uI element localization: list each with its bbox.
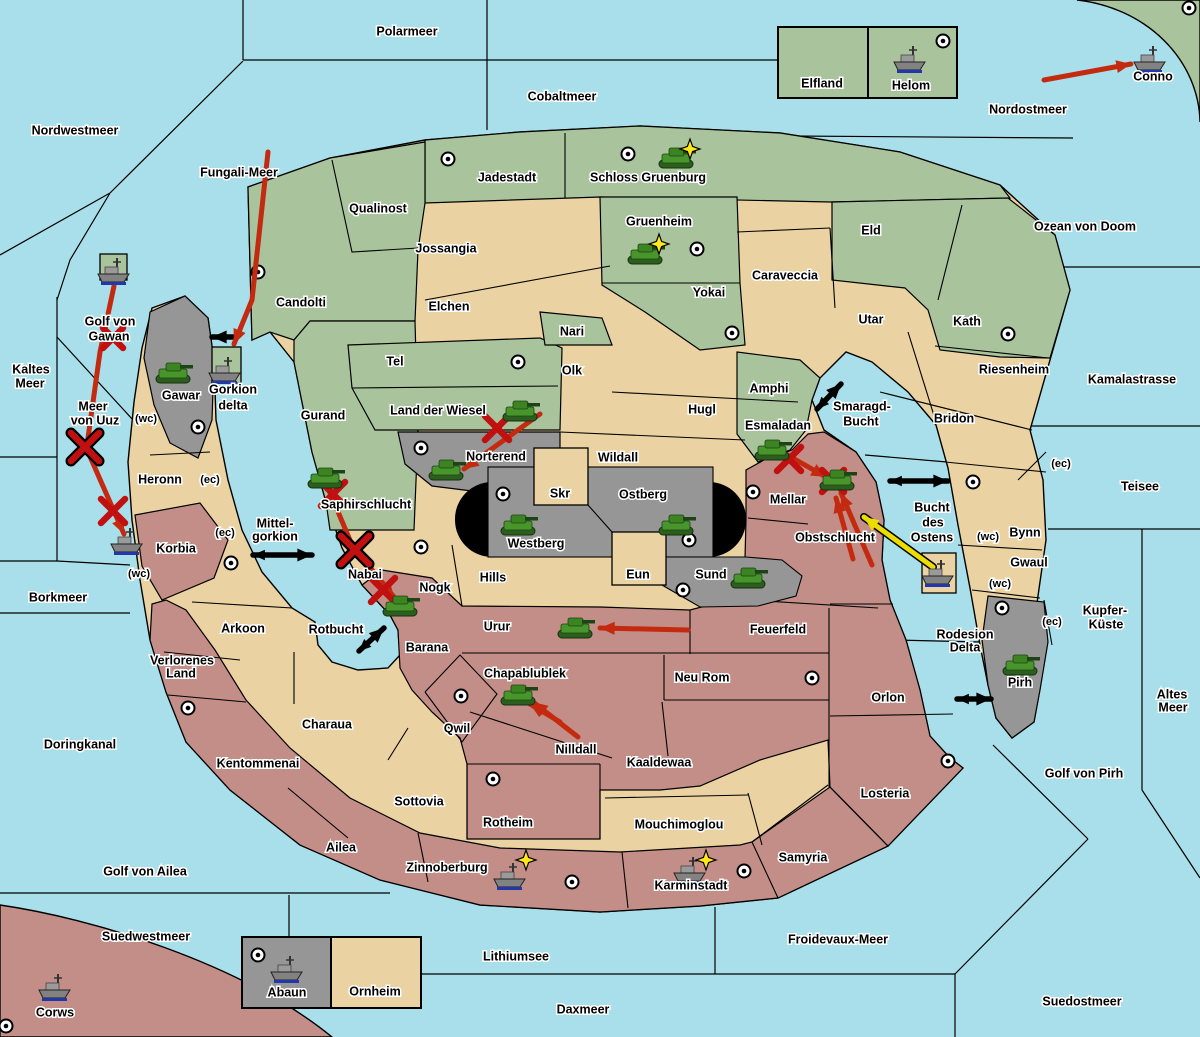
region-label-ailea[interactable]: Ailea <box>326 840 357 854</box>
region-label-zinnoberburg[interactable]: Zinnoberburg <box>406 860 487 874</box>
region-label--ec-: (ec) <box>215 527 235 539</box>
supply-center-dot <box>487 773 500 786</box>
region-label-gurand[interactable]: Gurand <box>301 408 345 422</box>
region-label-gruenheim[interactable]: Gruenheim <box>626 214 692 228</box>
region-label-olk[interactable]: Olk <box>562 363 582 377</box>
region-label-obstschlucht[interactable]: Obstschlucht <box>795 530 876 544</box>
supply-center-dot <box>806 672 819 685</box>
region-label-helom[interactable]: Helom <box>892 78 930 92</box>
region-label-qualinost[interactable]: Qualinost <box>349 201 407 215</box>
region-label-ostberg[interactable]: Ostberg <box>619 487 667 501</box>
sea-label-nordwestmeer: Nordwestmeer <box>32 123 119 137</box>
region-label-candolti[interactable]: Candolti <box>276 295 326 309</box>
region-label-amphi[interactable]: Amphi <box>750 381 789 395</box>
supply-center-dot <box>996 602 1009 615</box>
supply-center-dot <box>192 421 205 434</box>
region-label-esmaladan[interactable]: Esmaladan <box>745 418 811 432</box>
region-label-feuerfeld[interactable]: Feuerfeld <box>750 622 806 636</box>
region-label-nabai[interactable]: Nabai <box>348 567 382 581</box>
sea-label-golf-von-ailea: Golf von Ailea <box>103 864 188 878</box>
region-label--wc-: (wc) <box>135 413 157 425</box>
region-label--wc-: (wc) <box>977 531 999 543</box>
sea-label-suedwestmeer: Suedwestmeer <box>102 929 190 943</box>
sea-label-meer: Meer <box>78 399 107 413</box>
region-label-hills[interactable]: Hills <box>480 570 506 584</box>
region-label-qwil[interactable]: Qwil <box>444 721 470 735</box>
supply-center-dot <box>512 356 525 369</box>
region-label-delta[interactable]: delta <box>218 398 248 412</box>
region-label-saphirschlucht[interactable]: Saphirschlucht <box>321 497 412 511</box>
region-label-yokai[interactable]: Yokai <box>693 285 725 299</box>
region-label-charaua[interactable]: Charaua <box>302 717 353 731</box>
region-label-sund[interactable]: Sund <box>695 567 726 581</box>
sea-label-bucht: Bucht <box>914 500 950 514</box>
region-label-jossangia[interactable]: Jossangia <box>415 241 477 255</box>
sea-label-lithiumsee: Lithiumsee <box>483 949 549 963</box>
region-label-land[interactable]: Land <box>166 666 196 680</box>
supply-center-dot <box>252 949 265 962</box>
supply-center-dot <box>691 243 704 256</box>
region-label--ec-: (ec) <box>1051 458 1071 470</box>
sea-label-meer: Meer <box>15 376 44 390</box>
region-label-jadestadt[interactable]: Jadestadt <box>478 170 537 184</box>
region-label-nari[interactable]: Nari <box>560 324 584 338</box>
sea-label-golf-von-pirh: Golf von Pirh <box>1045 766 1123 780</box>
supply-center-dot <box>1183 2 1196 15</box>
sea-label-kaltes: Kaltes <box>12 362 50 376</box>
map-canvas[interactable]: PolarmeerCobaltmeerNordwestmeerFungali-M… <box>0 0 1200 1037</box>
supply-center-dot <box>415 541 428 554</box>
supply-center-dot <box>455 690 468 703</box>
supply-center-dot <box>967 476 980 489</box>
supply-center-dot <box>1002 328 1015 341</box>
supply-center-dot <box>225 557 238 570</box>
sea-label-meer: Meer <box>1158 700 1187 714</box>
supply-center-dot <box>937 35 950 48</box>
supply-center-dot <box>566 876 579 889</box>
region-label-verlorenes[interactable]: Verlorenes <box>150 653 214 667</box>
region-label-kaaldewaa[interactable]: Kaaldewaa <box>627 755 693 769</box>
region-label--wc-: (wc) <box>128 568 150 580</box>
sea-label-des: des <box>922 515 944 529</box>
region-label-rotheim[interactable]: Rotheim <box>483 815 533 829</box>
region-label-hugl[interactable]: Hugl <box>688 402 716 416</box>
region-label-mouchimoglou[interactable]: Mouchimoglou <box>635 817 724 831</box>
sea-label-rodesion: Rodesion <box>937 627 994 641</box>
region-label--ec-: (ec) <box>1042 616 1062 628</box>
supply-center-dot <box>677 584 690 597</box>
supply-center-dot <box>622 148 635 161</box>
region-label-chapablublek[interactable]: Chapablublek <box>484 666 566 680</box>
sea-label-ostens: Ostens <box>911 530 953 544</box>
region-label-schloss-gruenburg[interactable]: Schloss Gruenburg <box>590 170 706 184</box>
sea-label-borkmeer: Borkmeer <box>29 590 87 604</box>
region-label-mellar[interactable]: Mellar <box>770 492 806 506</box>
supply-center-dot <box>0 1020 13 1033</box>
region-label-ornheim[interactable]: Ornheim <box>349 984 400 998</box>
sea-label-altes: Altes <box>1157 687 1188 701</box>
supply-center-dot <box>726 327 739 340</box>
sea-label-suedostmeer: Suedostmeer <box>1042 994 1121 1008</box>
region-label-elfland[interactable]: Elfland <box>801 76 843 90</box>
supply-center-dot <box>942 755 955 768</box>
supply-center-dot <box>747 486 760 499</box>
region-label-westberg[interactable]: Westberg <box>508 536 565 550</box>
region-label-land-der-wiesel[interactable]: Land der Wiesel <box>390 403 486 417</box>
region-label-nogk[interactable]: Nogk <box>419 580 450 594</box>
sea-label-polarmeer: Polarmeer <box>376 24 437 38</box>
region-label-samyria[interactable]: Samyria <box>779 850 829 864</box>
supply-center-dot <box>738 865 751 878</box>
region-label-elchen[interactable]: Elchen <box>429 299 470 313</box>
supply-center-dot <box>442 153 455 166</box>
sea-label-k-ste: Küste <box>1089 617 1124 631</box>
region-label-arkoon[interactable]: Arkoon <box>221 621 265 635</box>
sea-label-daxmeer: Daxmeer <box>557 1002 610 1016</box>
sea-label-doringkanal: Doringkanal <box>44 737 116 751</box>
sea-label-nordostmeer: Nordostmeer <box>989 102 1067 116</box>
region-label--ec-: (ec) <box>200 474 220 486</box>
sea-label-cobaltmeer: Cobaltmeer <box>528 89 597 103</box>
sea-label-mittel-: Mittel- <box>257 516 294 530</box>
region-label-neu-rom[interactable]: Neu Rom <box>675 670 730 684</box>
region-label-eld[interactable]: Eld <box>861 223 880 237</box>
sea-label-von-uuz: von Uuz <box>71 413 120 427</box>
region-label-tel[interactable]: Tel <box>386 354 403 368</box>
region-label-utar[interactable]: Utar <box>858 312 883 326</box>
region-label-conno[interactable]: Conno <box>1133 69 1173 83</box>
region-label-bridon[interactable]: Bridon <box>934 411 974 425</box>
region-label-heronn[interactable]: Heronn <box>138 472 182 486</box>
region-label-gwaul[interactable]: Gwaul <box>1010 555 1048 569</box>
game-map[interactable]: PolarmeerCobaltmeerNordwestmeerFungali-M… <box>0 0 1200 1037</box>
supply-center-dot <box>182 702 195 715</box>
region-label-kentommenai[interactable]: Kentommenai <box>217 756 300 770</box>
sea-label-smaragd-: Smaragd- <box>833 399 891 413</box>
sea-label-delta: Delta <box>950 640 982 654</box>
region-label-abaun[interactable]: Abaun <box>268 985 307 999</box>
region-label-karminstadt[interactable]: Karminstadt <box>655 878 729 892</box>
supply-center-dot <box>497 488 510 501</box>
sea-label-kamalastrasse: Kamalastrasse <box>1088 372 1176 386</box>
sea-label-gawan: Gawan <box>89 329 130 343</box>
region-label-sottovia[interactable]: Sottovia <box>394 794 444 808</box>
supply-center-dot <box>415 442 428 455</box>
region-label-barana[interactable]: Barana <box>406 640 449 654</box>
sea-label-rotbucht: Rotbucht <box>309 622 365 636</box>
region-label-losteria[interactable]: Losteria <box>861 786 911 800</box>
sea-label-kupfer-: Kupfer- <box>1083 603 1127 617</box>
sea-label-golf-von: Golf von <box>85 314 136 328</box>
region-label-pirh[interactable]: Pirh <box>1008 675 1032 689</box>
region-label-gorkion[interactable]: Gorkion <box>209 382 257 396</box>
region-label-wildall[interactable]: Wildall <box>598 450 638 464</box>
region-label-eun[interactable]: Eun <box>626 567 650 581</box>
sea-label-ozean-von-doom: Ozean von Doom <box>1034 219 1136 233</box>
region-label-skr[interactable]: Skr <box>550 486 570 500</box>
sea-label-bucht: Bucht <box>843 414 879 428</box>
sea-label-gorkion: gorkion <box>252 529 298 543</box>
region-label-nilldall[interactable]: Nilldall <box>556 742 597 756</box>
region-label-riesenheim[interactable]: Riesenheim <box>979 362 1049 376</box>
region-label-urur[interactable]: Urur <box>484 619 511 633</box>
sea-label-teisee: Teisee <box>1121 479 1159 493</box>
region-label--wc-: (wc) <box>989 578 1011 590</box>
region-label-kath[interactable]: Kath <box>953 314 981 328</box>
sea-label-froidevaux-meer: Froidevaux-Meer <box>788 932 888 946</box>
region-label-orlon[interactable]: Orlon <box>871 690 904 704</box>
region-label-corws[interactable]: Corws <box>36 1005 74 1019</box>
region-label-norterend[interactable]: Norterend <box>466 449 526 463</box>
region-label-caraveccia[interactable]: Caraveccia <box>752 268 819 282</box>
region-label-gawar[interactable]: Gawar <box>162 388 200 402</box>
region-label-korbia[interactable]: Korbia <box>156 541 197 555</box>
region-label-bynn[interactable]: Bynn <box>1009 525 1040 539</box>
sea-label-fungali-meer: Fungali-Meer <box>200 165 278 179</box>
